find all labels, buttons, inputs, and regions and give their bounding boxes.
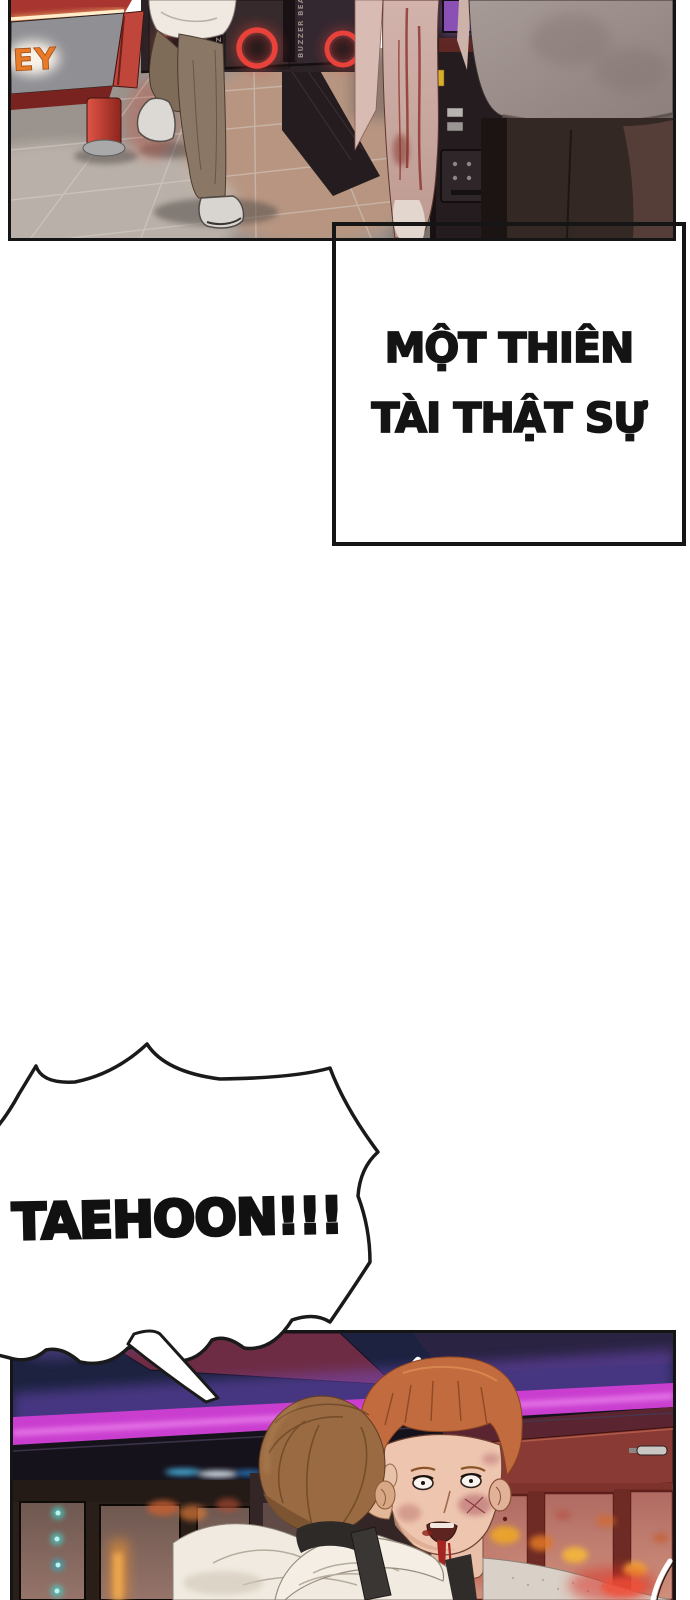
buzzer-beater-label: BUZZER BEATER (297, 0, 305, 58)
door-handle (637, 1446, 667, 1455)
arcade-panel: BUZZER BEATER BUZZER BEATER BUZZER BEATE… (8, 0, 676, 241)
arcade-panel-art: BUZZER BEATER BUZZER BEATER BUZZER BEATE… (11, 0, 673, 238)
speech-line-2: TÀI THẬT SỰ (371, 384, 646, 454)
speech-box: MỘT THIÊN TÀI THẬT SỰ (332, 222, 686, 546)
arcade-ring-light (239, 30, 275, 66)
comic-page: BUZZER BEATER BUZZER BEATER BUZZER BEATE… (0, 0, 690, 1600)
hockey-sign-ey: EY (12, 42, 58, 79)
shout-text: TAEHOON!!! (11, 1187, 332, 1252)
speech-line-1: MỘT THIÊN (385, 314, 634, 384)
bystander-person (457, 0, 673, 238)
